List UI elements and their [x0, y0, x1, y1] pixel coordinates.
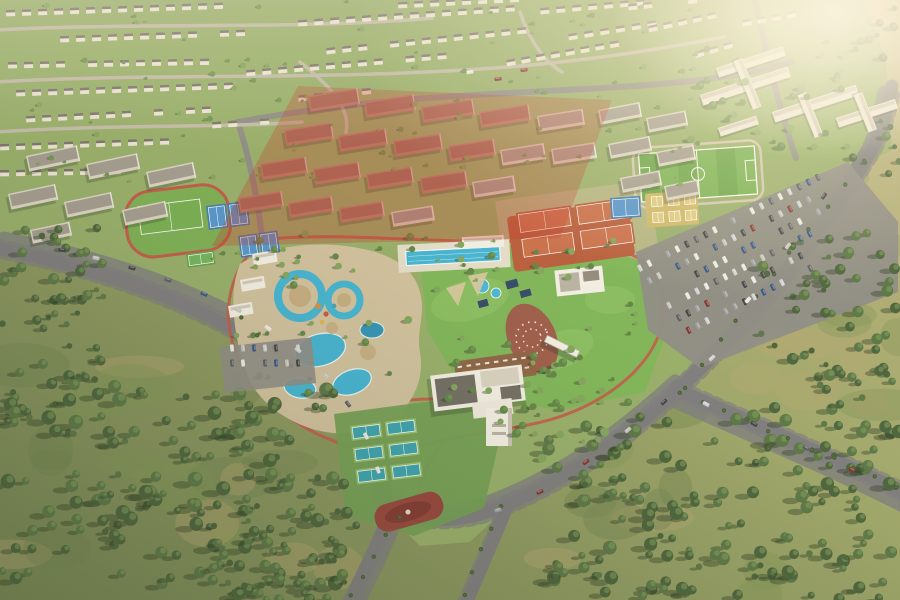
warm-tint: [0, 0, 900, 600]
aerial-masterplan-render: [0, 0, 900, 600]
atmosphere: [0, 0, 900, 600]
aerial-render-frame: [0, 0, 900, 600]
